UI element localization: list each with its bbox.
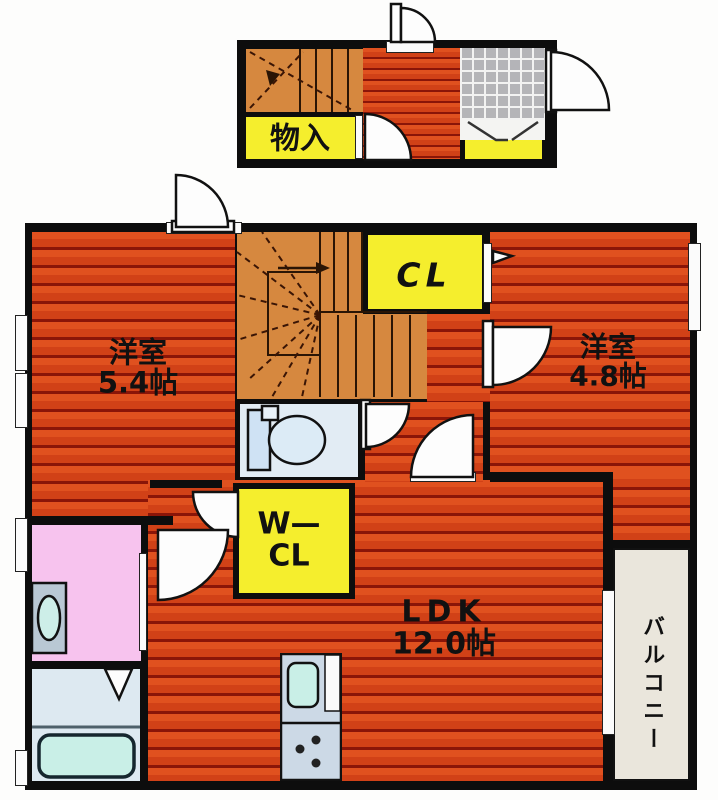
threshold-upper-door [386, 41, 434, 53]
label-ldk-type: LDK [392, 597, 496, 629]
entrance-step [460, 120, 545, 140]
label-bedroom-right-type: 洋室 [569, 333, 647, 362]
window-bedroom-left [15, 315, 28, 371]
upper-storage-door [355, 115, 363, 159]
washroom-sliding-door [139, 553, 147, 651]
wall-toilet-hall [358, 402, 365, 478]
label-bedroom-right: 洋室 4.8帖 [569, 333, 647, 392]
threshold-main-entry [166, 222, 242, 234]
label-balcony: バルコニー [640, 575, 663, 795]
label-closet: CL [396, 259, 451, 294]
label-bedroom-left-size: 5.4帖 [98, 368, 178, 398]
label-bedroom-right-size: 4.8帖 [569, 362, 647, 391]
label-upper-storage: 物入 [270, 123, 330, 155]
upper-top-door-leaf [391, 4, 401, 42]
window-bathroom [15, 750, 28, 786]
main-entry-door-arc [176, 175, 228, 227]
upper-top-door-arc [401, 8, 435, 42]
toilet-fixture [240, 404, 358, 477]
floor-plan-page: 物入 CL 洋室 5.4帖 洋室 4.8帖 W— CL LDK 12.0帖 バル… [0, 0, 718, 800]
label-walk-in-closet: W— CL [257, 509, 320, 572]
label-bedroom-left-type: 洋室 [98, 338, 178, 368]
entrance-tile-floor [460, 48, 545, 120]
window-bedroom-right [688, 243, 701, 331]
main-plan-walls [25, 223, 697, 790]
closet-opening-bar [483, 243, 492, 303]
shoe-cabinet [465, 140, 542, 159]
label-bedroom-left: 洋室 5.4帖 [98, 338, 178, 399]
window-bedroom-left-2 [15, 373, 28, 428]
wall-bedright-ldk [490, 472, 613, 482]
wall-bedleft-washroom [25, 516, 173, 525]
wall-bedleft-hall [150, 480, 222, 488]
label-wcl-line1: W— [257, 509, 320, 541]
window-washroom [15, 518, 28, 572]
label-ldk: LDK 12.0帖 [392, 597, 496, 660]
washbasin-fixture [32, 525, 141, 661]
bedroom-right-alcove [613, 472, 690, 540]
front-door-arc [551, 52, 609, 110]
window-ldk-balcony [602, 590, 615, 735]
upper-stairs [246, 49, 363, 112]
bathtub-fixture [32, 669, 140, 781]
room-ldk [148, 480, 612, 781]
label-wcl-line2: CL [257, 540, 320, 572]
hall-mid [365, 402, 483, 482]
hall-right-of-stairs [427, 314, 490, 402]
upper-hall [363, 48, 460, 159]
threshold-ldk-hall [410, 472, 476, 482]
label-ldk-size: 12.0帖 [392, 628, 496, 660]
kitchen-fixture [280, 653, 342, 781]
